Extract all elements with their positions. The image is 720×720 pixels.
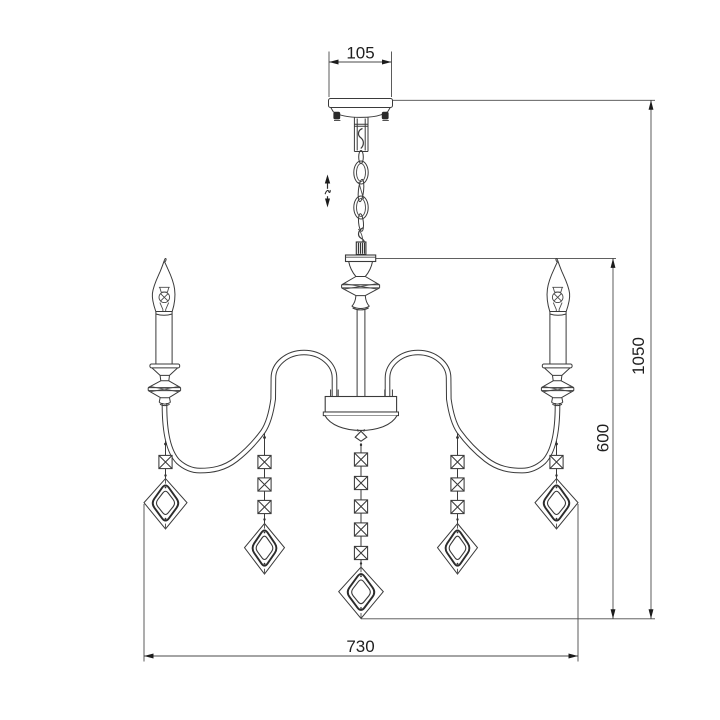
- svg-text:730: 730: [346, 637, 374, 656]
- svg-text:1050: 1050: [629, 337, 648, 375]
- svg-text:105: 105: [346, 44, 374, 63]
- svg-text:600: 600: [594, 424, 613, 452]
